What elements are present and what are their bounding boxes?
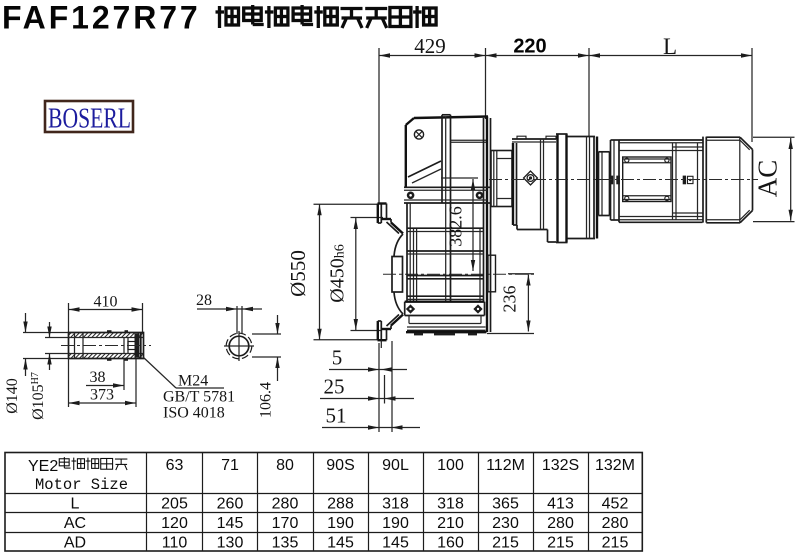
- svg-text:120: 120: [161, 515, 188, 532]
- svg-text:220: 220: [513, 36, 546, 58]
- svg-text:51: 51: [326, 404, 347, 428]
- svg-text:210: 210: [437, 515, 464, 532]
- svg-text:190: 190: [327, 515, 354, 532]
- svg-text:215: 215: [547, 535, 574, 552]
- svg-text:BOSERL: BOSERL: [48, 104, 131, 135]
- svg-text:205: 205: [161, 496, 188, 513]
- svg-text:135: 135: [272, 535, 299, 552]
- svg-text:280: 280: [547, 515, 574, 532]
- svg-text:260: 260: [217, 496, 244, 513]
- svg-text:318: 318: [437, 496, 464, 513]
- svg-text:130: 130: [217, 535, 244, 552]
- svg-text:5: 5: [332, 346, 343, 370]
- svg-text:FAF127R77: FAF127R77: [2, 0, 201, 36]
- svg-text:110: 110: [162, 535, 188, 552]
- svg-text:Motor Size: Motor Size: [35, 476, 128, 494]
- svg-text:382.6: 382.6: [446, 206, 466, 247]
- svg-text:106.4: 106.4: [258, 382, 275, 418]
- svg-text:25: 25: [324, 375, 345, 399]
- svg-text:YE2: YE2: [28, 458, 58, 475]
- svg-text:ISO 4018: ISO 4018: [163, 405, 225, 422]
- svg-text:236: 236: [500, 286, 520, 313]
- svg-text:AC: AC: [64, 515, 86, 532]
- svg-text:280: 280: [272, 496, 299, 513]
- svg-text:M24: M24: [178, 373, 208, 390]
- svg-text:AD: AD: [64, 535, 86, 552]
- svg-text:373: 373: [90, 387, 114, 404]
- svg-text:63: 63: [166, 457, 184, 474]
- svg-text:Ø140: Ø140: [4, 378, 21, 414]
- svg-text:215: 215: [492, 535, 519, 552]
- svg-text:112M: 112M: [486, 457, 525, 474]
- svg-text:429: 429: [414, 34, 446, 58]
- svg-text:L: L: [71, 496, 80, 513]
- svg-text:365: 365: [492, 496, 519, 513]
- svg-text:AC: AC: [753, 160, 783, 198]
- svg-text:145: 145: [327, 535, 354, 552]
- svg-text:90L: 90L: [382, 457, 409, 474]
- svg-text:413: 413: [547, 496, 574, 513]
- svg-text:90S: 90S: [326, 457, 354, 474]
- svg-text:170: 170: [272, 515, 299, 532]
- svg-text:38: 38: [90, 369, 106, 386]
- svg-text:Ø550: Ø550: [286, 250, 310, 297]
- svg-text:215: 215: [602, 535, 629, 552]
- svg-text:28: 28: [196, 292, 212, 309]
- svg-text:GB/T 5781: GB/T 5781: [163, 389, 235, 406]
- svg-text:452: 452: [602, 496, 629, 513]
- svg-text:145: 145: [217, 515, 244, 532]
- svg-text:145: 145: [382, 535, 409, 552]
- svg-text:132S: 132S: [542, 457, 579, 474]
- svg-text:71: 71: [221, 457, 239, 474]
- svg-text:230: 230: [492, 515, 519, 532]
- svg-text:410: 410: [94, 294, 118, 311]
- svg-text:132M: 132M: [595, 457, 635, 474]
- svg-text:80: 80: [276, 457, 294, 474]
- svg-text:190: 190: [382, 515, 409, 532]
- svg-text:288: 288: [327, 496, 354, 513]
- svg-text:100: 100: [437, 457, 464, 474]
- svg-text:160: 160: [437, 535, 464, 552]
- svg-text:L: L: [663, 34, 677, 59]
- svg-text:280: 280: [602, 515, 629, 532]
- svg-text:318: 318: [382, 496, 409, 513]
